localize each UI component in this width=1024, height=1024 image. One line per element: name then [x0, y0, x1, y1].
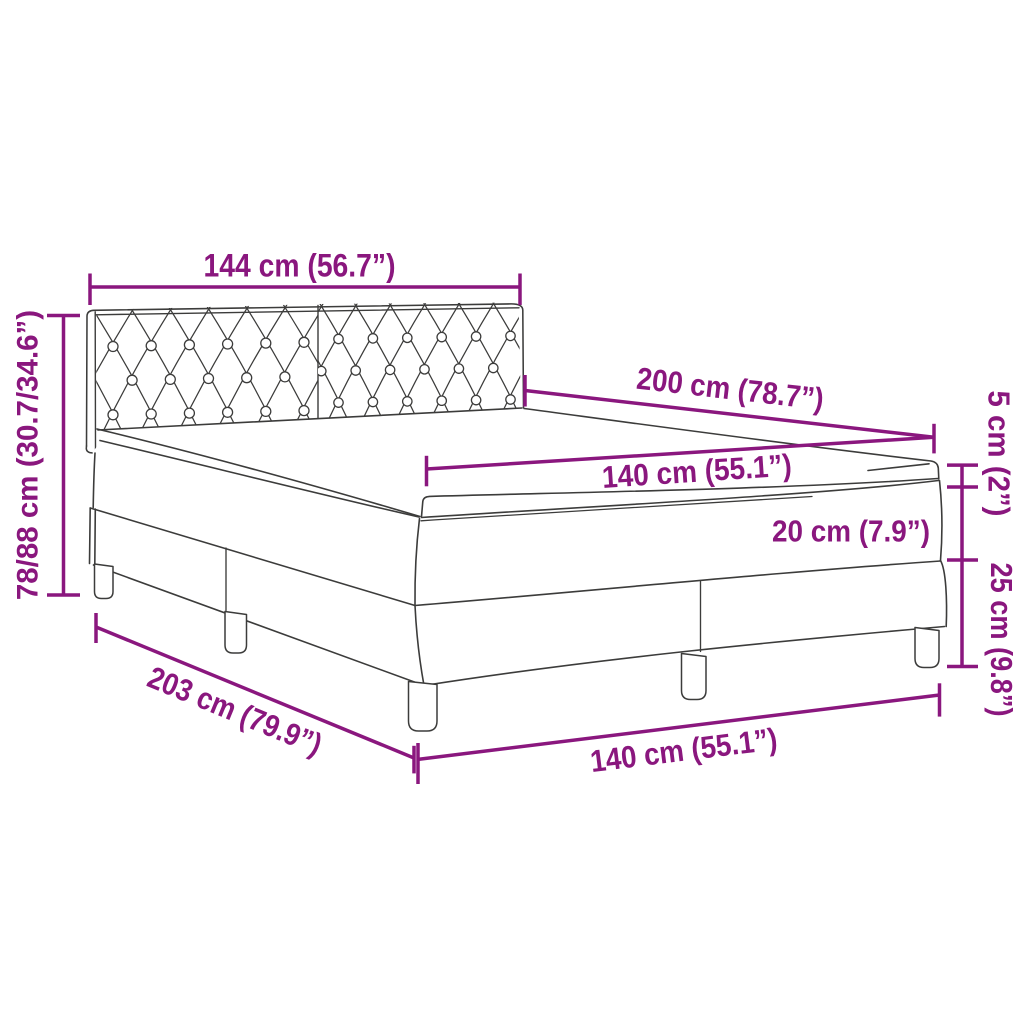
svg-text:144 cm (56.7”): 144 cm (56.7”) — [204, 247, 396, 283]
svg-text:20 cm (7.9”): 20 cm (7.9”) — [772, 514, 930, 549]
svg-text:25 cm (9.8”): 25 cm (9.8”) — [984, 563, 1019, 717]
svg-text:78/88 cm (30.7/34.6”): 78/88 cm (30.7/34.6”) — [11, 310, 44, 600]
svg-text:5 cm (2”): 5 cm (2”) — [981, 391, 1016, 517]
